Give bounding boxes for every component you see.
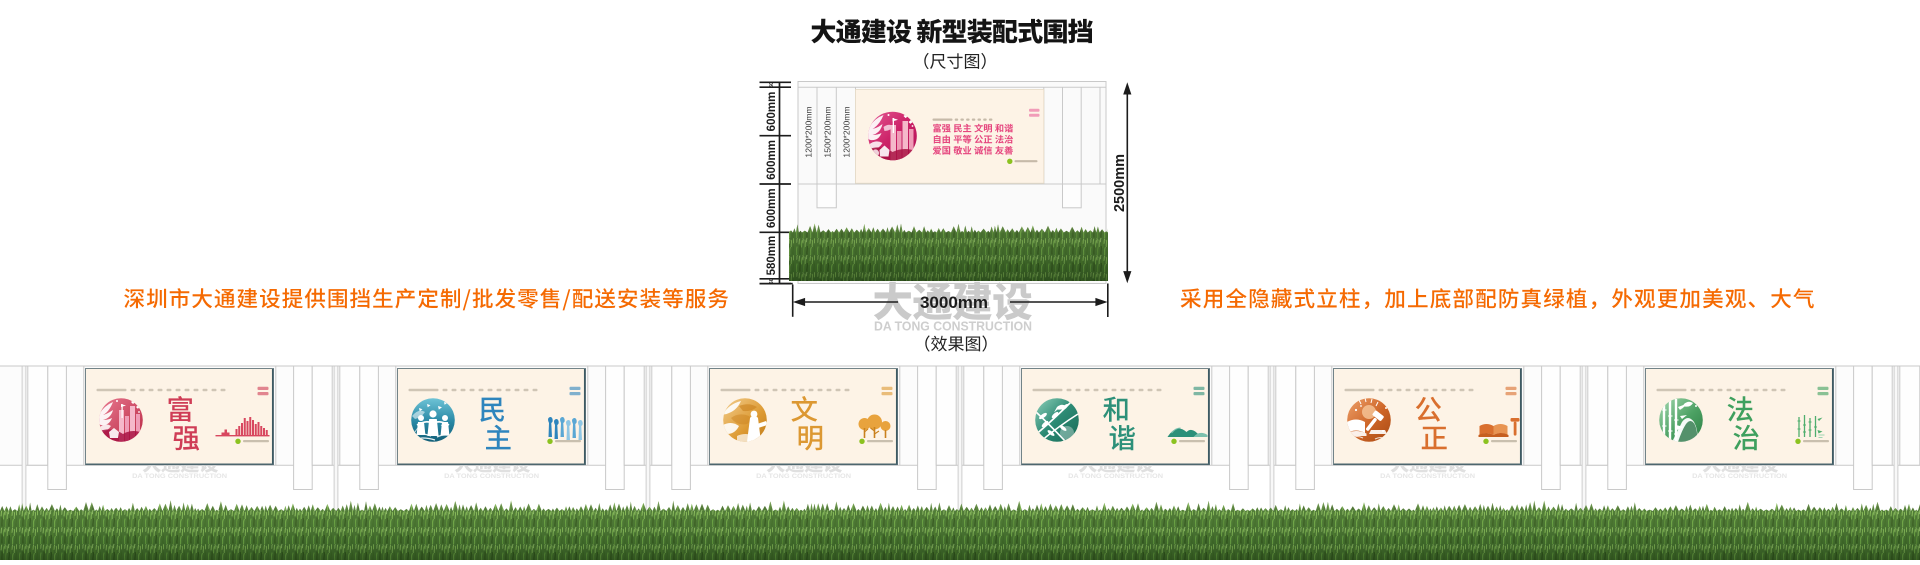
svg-text:580mm: 580mm: [766, 236, 778, 276]
svg-text:DA TONG CONSTRUCTION: DA TONG CONSTRUCTION: [132, 474, 227, 480]
svg-text:2500mm: 2500mm: [1112, 154, 1128, 212]
svg-text:DA TONG CONSTRUCTION: DA TONG CONSTRUCTION: [756, 474, 851, 480]
svg-text:60: 60: [769, 278, 775, 284]
svg-text:DA TONG CONSTRUCTION: DA TONG CONSTRUCTION: [444, 474, 539, 480]
svg-text:600mm: 600mm: [766, 140, 778, 180]
svg-text:600mm: 600mm: [766, 92, 778, 132]
svg-text:3000mm: 3000mm: [920, 293, 988, 312]
svg-text:1500*200mm: 1500*200mm: [822, 106, 832, 157]
svg-text:1200*200mm: 1200*200mm: [803, 106, 813, 157]
svg-text:600mm: 600mm: [766, 188, 778, 228]
svg-text:DA TONG CONSTRUCTION: DA TONG CONSTRUCTION: [1068, 474, 1163, 480]
svg-text:60: 60: [769, 82, 775, 88]
svg-text:DA TONG CONSTRUCTION: DA TONG CONSTRUCTION: [1380, 474, 1475, 480]
svg-text:DA TONG CONSTRUCTION: DA TONG CONSTRUCTION: [874, 319, 1032, 334]
svg-text:DA TONG CONSTRUCTION: DA TONG CONSTRUCTION: [1692, 474, 1787, 480]
svg-text:1200*200mm: 1200*200mm: [841, 106, 851, 157]
